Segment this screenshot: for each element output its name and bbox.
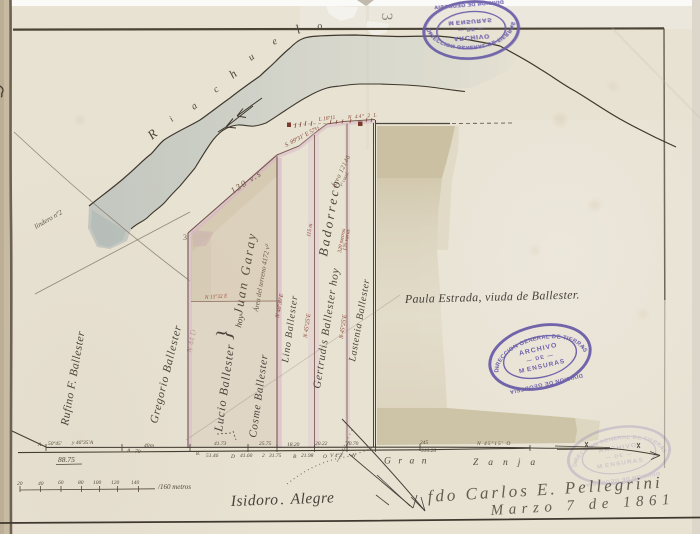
svg-text:120: 120 xyxy=(111,480,120,486)
svg-text:3: 3 xyxy=(183,233,187,242)
svg-text:310.28: 310.28 xyxy=(420,448,436,454)
svg-text:20.70: 20.70 xyxy=(346,441,359,447)
svg-text:88.75: 88.75 xyxy=(58,455,75,464)
svg-text:50º45′: 50º45′ xyxy=(48,440,63,447)
svg-text:140: 140 xyxy=(131,479,140,486)
svg-text:20.22: 20.22 xyxy=(315,441,328,447)
svg-text:31.75: 31.75 xyxy=(268,453,282,459)
svg-text:70: 70 xyxy=(135,449,141,455)
svg-text:40: 40 xyxy=(38,480,44,487)
svg-text:18.20: 18.20 xyxy=(287,442,300,448)
svg-text:40 m: 40 m xyxy=(144,442,154,449)
svg-text:51.46: 51.46 xyxy=(206,452,219,459)
svg-text:3: 3 xyxy=(378,13,395,22)
svg-text:O: O xyxy=(323,454,327,460)
svg-text:100: 100 xyxy=(93,480,102,486)
svg-text:41.73: 41.73 xyxy=(214,440,227,447)
svg-text:Zanja: Zanja xyxy=(473,458,545,468)
svg-text:60: 60 xyxy=(58,480,64,486)
svg-text:A: A xyxy=(126,448,131,454)
svg-text:Gran: Gran xyxy=(384,457,434,467)
svg-text:20: 20 xyxy=(17,481,23,487)
svg-text:245: 245 xyxy=(420,439,429,446)
svg-text:N 45º15′ O: N 45º15′ O xyxy=(476,440,511,447)
svg-text:21.98: 21.98 xyxy=(301,453,314,459)
svg-text:A: A xyxy=(37,442,42,448)
svg-text:41.60: 41.60 xyxy=(240,452,253,459)
svg-text:25.75: 25.75 xyxy=(259,441,272,447)
svg-text:y 46º35′A: y 46º35′A xyxy=(71,439,94,446)
svg-text:D: D xyxy=(230,454,235,460)
svg-text:8.: 8. xyxy=(196,451,200,457)
svg-text:/160 metros: /160 metros xyxy=(157,483,191,491)
svg-text:80: 80 xyxy=(78,480,84,486)
svg-text:2: 2 xyxy=(262,453,265,459)
